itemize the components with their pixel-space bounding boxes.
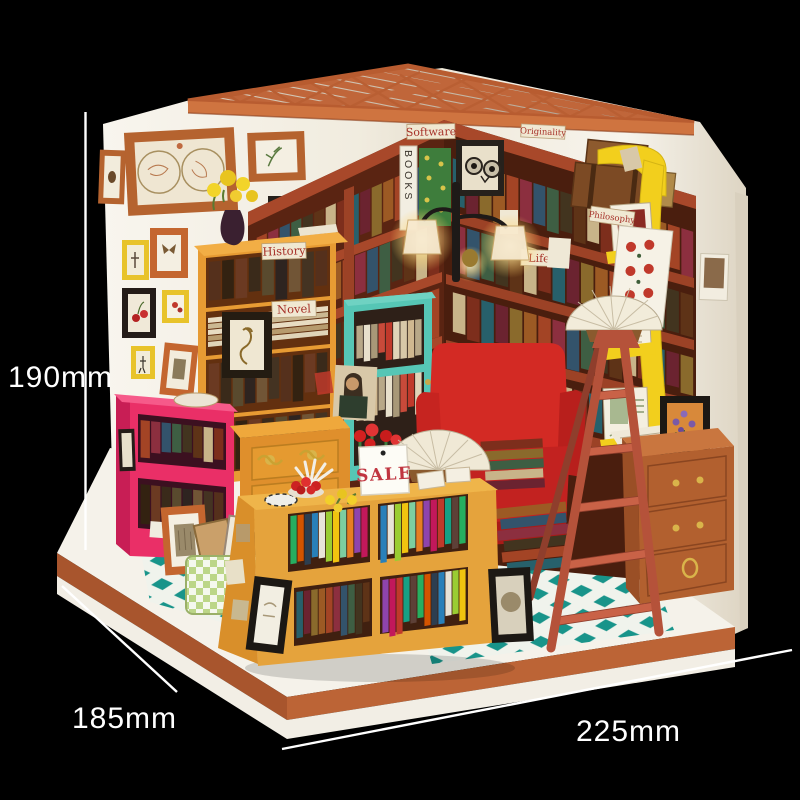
svg-text:Software: Software <box>406 125 457 139</box>
cabinet-handle <box>425 379 431 385</box>
moth-frame <box>150 228 188 278</box>
yellow-small-frame <box>122 240 149 280</box>
books-spine-label: BOOKS <box>402 150 414 202</box>
depth-dimension-label: 185mm <box>72 702 177 735</box>
wall-postcard <box>699 254 729 301</box>
scene-canvas: BOOKS Software Originality Life <box>0 0 800 800</box>
lamp-shade <box>491 226 529 260</box>
flower-yellow-frame <box>162 290 189 323</box>
pinned-card <box>547 237 571 268</box>
beetle-frame <box>98 150 126 205</box>
shell-plate <box>174 393 218 407</box>
cherry-frame <box>122 288 156 338</box>
history-tag: History <box>262 242 307 260</box>
originality-tag: Originality <box>520 124 567 139</box>
height-dimension-label: 190mm <box>8 361 113 394</box>
novel-tag: Novel <box>272 300 317 318</box>
black-label-frame <box>118 429 135 472</box>
svg-text:History: History <box>262 243 306 259</box>
svg-text:Novel: Novel <box>277 301 312 316</box>
product-photo-dollhouse-library: BOOKS Software Originality Life <box>0 0 800 800</box>
world-map-frame <box>124 127 238 216</box>
leaning-frame-on-shelf <box>159 342 198 397</box>
figure-yellow-frame <box>131 346 155 379</box>
ticket-card <box>417 470 445 489</box>
leaning-black-frame-right <box>488 567 534 643</box>
seahorse-frame <box>222 312 272 378</box>
portrait-card <box>333 365 378 421</box>
stamp-sticker <box>315 371 334 395</box>
ladder-top <box>592 330 640 348</box>
software-tag: Software <box>406 124 457 140</box>
sale-sign: SALE <box>355 445 414 496</box>
width-dimension-label: 225mm <box>576 715 681 748</box>
owl-picture <box>456 140 504 196</box>
book-row <box>356 319 421 362</box>
lamp-shade <box>403 220 441 254</box>
botanical-frame <box>247 131 306 182</box>
ticket-card <box>446 467 471 483</box>
sale-sign-label: SALE <box>356 464 413 487</box>
brass-bell <box>462 249 478 267</box>
